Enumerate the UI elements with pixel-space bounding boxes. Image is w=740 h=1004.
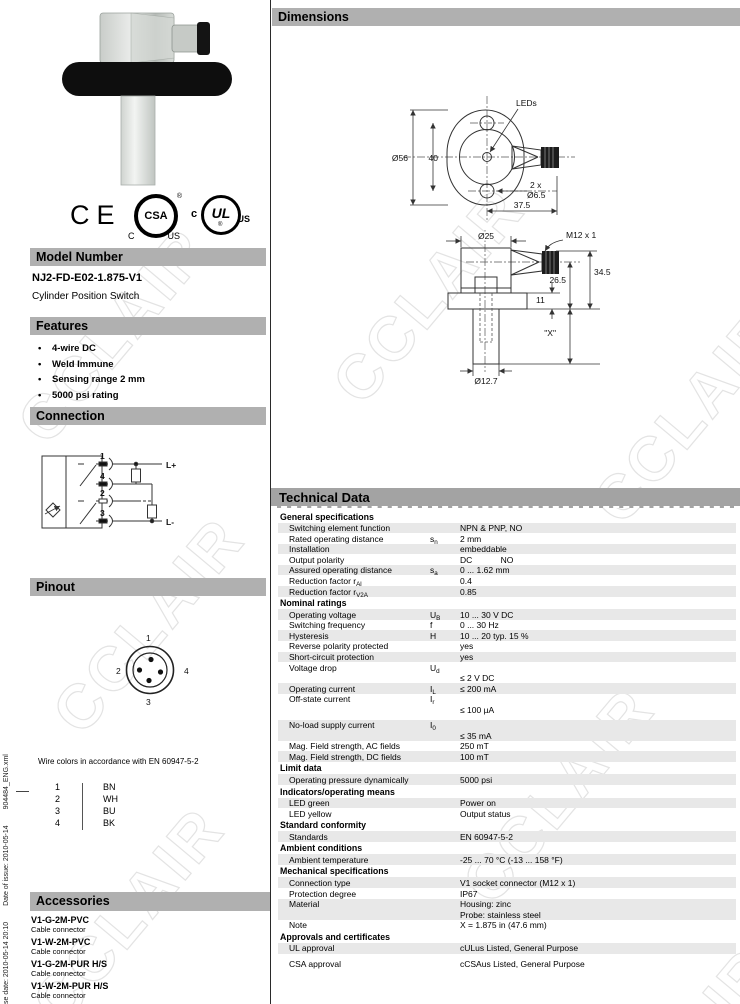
tech-row-value: yes xyxy=(460,652,473,662)
tech-row-symbol: f xyxy=(430,620,432,630)
tech-row-line: Ambient temperature-25 ... 70 °C (-13 ..… xyxy=(278,854,736,865)
accessories-header: Accessories xyxy=(30,892,270,911)
issue-date: Date of issue: 2010-05-14 xyxy=(3,825,10,906)
tech-row-symbol: Ir xyxy=(430,694,434,704)
dim-dia56-label: Ø56 xyxy=(392,153,408,163)
tech-row-value: -25 ... 70 °C (-13 ... 158 °F) xyxy=(460,855,563,865)
tech-row-symbol: H xyxy=(430,631,436,641)
wire-color-row: 1BN xyxy=(45,782,165,794)
tech-row-value: X = 1.875 in (47.6 mm) xyxy=(460,920,547,930)
tech-row: Mag. Field strength, DC fields100 mT xyxy=(278,751,736,762)
tech-row: Switching frequencyf0 ... 30 Hz xyxy=(278,620,736,631)
tech-row-value: ≤ 35 mA xyxy=(460,731,492,741)
wire-color-code: BK xyxy=(103,818,115,828)
tech-row-line: Reverse polarity protectedyes xyxy=(278,641,736,652)
tech-row-label: Hysteresis xyxy=(289,631,329,641)
tech-row-value: ≤ 100 µA xyxy=(460,705,494,715)
tech-row-line: Switching frequencyf0 ... 30 Hz xyxy=(278,620,736,631)
wire-colors-table: 1BN2WH3BU4BK xyxy=(45,782,165,830)
tech-row: Off-state currentIr≤ 100 µA xyxy=(278,694,736,715)
tech-row-value: Probe: stainless steel xyxy=(460,910,541,920)
tech-row-value: 100 mT xyxy=(460,752,489,762)
wire-colors-note: Wire colors in accordance with EN 60947-… xyxy=(38,757,199,766)
tech-row-line: StandardsEN 60947-5-2 xyxy=(278,831,736,842)
tech-row: NoteX = 1.875 in (47.6 mm) xyxy=(278,920,736,931)
dimensions-drawing: Ø56 40 LEDs 2 x Ø6.5 37.5 Ø25 M12 x 1 xyxy=(270,30,740,490)
tech-row: Output polarityDC NO xyxy=(278,554,736,565)
accessory-description: Cable connector xyxy=(31,970,108,979)
features-list: •4-wire DC•Weld Immune•Sensing range 2 m… xyxy=(38,341,145,403)
tech-row-line: Protection degreeIP67 xyxy=(278,888,736,899)
model-number: NJ2-FD-E02-1.875-V1 xyxy=(32,272,142,284)
tech-row: UL approvalcULus Listed, General Purpose xyxy=(278,943,736,954)
tech-row-value: Housing: zinc xyxy=(460,899,511,909)
dim-m12-label: M12 x 1 xyxy=(566,230,597,240)
tech-row-value: IP67 xyxy=(460,889,478,899)
tech-section-header: Indicators/operating means xyxy=(278,787,736,798)
product-photo xyxy=(55,5,240,190)
model-number-header: Model Number xyxy=(30,248,266,266)
tech-row-label: Short-circuit protection xyxy=(289,652,374,662)
feature-label: 5000 psi rating xyxy=(52,390,119,401)
csa-us-label: US xyxy=(167,231,180,241)
dim-34-5-label: 34.5 xyxy=(594,267,611,277)
tech-row-value: Output status xyxy=(460,809,511,819)
l-plus-label: L+ xyxy=(166,460,176,470)
feature-label: Weld Immune xyxy=(52,359,114,370)
tech-row-line: MaterialHousing: zinc xyxy=(278,899,736,910)
pinout-pin-label: 2 xyxy=(116,666,121,676)
tech-section-header: Ambient conditions xyxy=(278,843,736,854)
connection-pin-label: 2 xyxy=(100,488,105,498)
dimensions-header: Dimensions xyxy=(272,8,740,26)
accessory-model: V1-G-2M-PVC xyxy=(31,915,108,926)
pinout-diagram: 1 2 4 3 xyxy=(90,615,210,710)
dim-holes-label-1: 2 x xyxy=(530,180,542,190)
tech-row: MaterialHousing: zincProbe: stainless st… xyxy=(278,899,736,920)
datasheet-page: CCLAIR CCLAIR CCLAIR CCLAIR CCLAIR CCLAI… xyxy=(0,0,740,1004)
tech-row-line: Voltage dropUd xyxy=(278,662,736,673)
tech-row-line: Short-circuit protectionyes xyxy=(278,652,736,663)
release-date: se date: 2010-05-14 20:10 xyxy=(3,922,10,1004)
tech-section-header: Limit data xyxy=(278,763,736,774)
wire-color-code: BU xyxy=(103,806,116,816)
tech-section-header: General specifications xyxy=(278,512,736,523)
tech-row-symbol: UB xyxy=(430,610,440,620)
tech-row-line: UL approvalcULus Listed, General Purpose xyxy=(278,943,736,954)
tech-row-label: Mag. Field strength, DC fields xyxy=(289,752,401,762)
connection-header: Connection xyxy=(30,407,266,425)
tech-row-line: Reduction factor rV2A0.85 xyxy=(278,586,736,597)
wire-color-code: WH xyxy=(103,794,118,804)
accessory-model: V1-W-2M-PVC xyxy=(31,937,108,948)
tech-row-line: Reduction factor rAl0.4 xyxy=(278,575,736,586)
wire-colors-rows: 1BN2WH3BU4BK xyxy=(45,782,165,830)
tech-row-symbol: IL xyxy=(430,684,436,694)
feature-item: •4-wire DC xyxy=(38,341,145,357)
tech-row-value: 0.85 xyxy=(460,587,477,597)
tech-row-line: NoteX = 1.875 in (47.6 mm) xyxy=(278,920,736,931)
file-name: 904484_ENG.xml xyxy=(3,754,10,809)
tech-row: LED yellowOutput status xyxy=(278,808,736,819)
csa-c-label: C xyxy=(128,231,135,241)
csa-logo: CSA ® C US xyxy=(126,191,184,243)
wire-pin-number: 1 xyxy=(55,782,60,792)
tech-row: Installationembeddable xyxy=(278,544,736,555)
tech-row-label: Note xyxy=(289,920,307,930)
tech-row-value: 250 mT xyxy=(460,741,489,751)
document-footer-vertical: se date: 2010-05-14 20:10 Date of issue:… xyxy=(3,740,10,1004)
accessory-description: Cable connector xyxy=(31,926,108,935)
tech-row-label: LED yellow xyxy=(289,809,332,819)
tech-row-label: Assured operating distance xyxy=(289,565,392,575)
dim-x-label: "X" xyxy=(544,328,556,338)
connection-pin-label: 3 xyxy=(100,508,105,518)
connection-pin-label: 1 xyxy=(100,451,105,461)
tech-row-line: Operating pressure dynamically5000 psi xyxy=(278,774,736,785)
tech-row-label: Protection degree xyxy=(289,889,356,899)
tech-row-value: 10 ... 30 V DC xyxy=(460,610,513,620)
tech-row-label: Connection type xyxy=(289,878,350,888)
tech-row-value: yes xyxy=(460,641,473,651)
tech-row-line: ≤ 2 V DC xyxy=(278,673,736,684)
tech-row-label: Material xyxy=(289,899,319,909)
tech-row: Operating currentIL≤ 200 mA xyxy=(278,683,736,694)
features-header: Features xyxy=(30,317,266,335)
tech-row-label: Reverse polarity protected xyxy=(289,641,388,651)
tech-section-header: Nominal ratings xyxy=(278,598,736,609)
tech-row-symbol: sa xyxy=(430,565,438,575)
tech-row: Operating pressure dynamically5000 psi xyxy=(278,774,736,785)
tech-row-value: ≤ 200 mA xyxy=(460,684,496,694)
model-subtitle: Cylinder Position Switch xyxy=(32,291,139,302)
tech-row: HysteresisH10 ... 20 typ. 15 % xyxy=(278,630,736,641)
connection-diagram: 1 4 2 3 L+ L- xyxy=(30,435,240,550)
technical-data-header: Technical Data xyxy=(271,488,740,508)
tech-row-label: Operating voltage xyxy=(289,610,356,620)
tech-row-line: Mag. Field strength, AC fields250 mT xyxy=(278,741,736,752)
tech-row-label: CSA approval xyxy=(289,959,341,969)
tech-row: Reduction factor rV2A0.85 xyxy=(278,586,736,597)
ul-logo: UL ® c US xyxy=(190,194,250,244)
tech-row: CSA approvalcCSAus Listed, General Purpo… xyxy=(278,958,736,969)
tech-row-value: 0 ... 30 Hz xyxy=(460,620,499,630)
tech-row-value: EN 60947-5-2 xyxy=(460,832,513,842)
bullet-icon: • xyxy=(38,372,52,388)
feature-label: Sensing range 2 mm xyxy=(52,374,145,385)
dim-dia25-label: Ø25 xyxy=(478,231,494,241)
connection-pin-label: 4 xyxy=(100,471,105,481)
tech-row-line: Rated operating distancesn2 mm xyxy=(278,533,736,544)
tech-row: Protection degreeIP67 xyxy=(278,888,736,899)
ul-us-label: US xyxy=(237,214,250,224)
tech-row-label: LED green xyxy=(289,798,330,808)
tech-row: Connection typeV1 socket connector (M12 … xyxy=(278,877,736,888)
tech-row-line: Installationembeddable xyxy=(278,544,736,555)
tech-row-label: Voltage drop xyxy=(289,663,337,673)
tech-row-line: Assured operating distancesa0 ... 1.62 m… xyxy=(278,565,736,576)
dim-37-5-label: 37.5 xyxy=(514,200,531,210)
registered-icon: ® xyxy=(177,193,182,200)
bullet-icon: • xyxy=(38,341,52,357)
tech-row-label: Ambient temperature xyxy=(289,855,368,865)
fold-mark xyxy=(16,791,29,792)
l-minus-label: L- xyxy=(166,517,174,527)
dim-11-label: 11 xyxy=(536,295,545,305)
tech-section-header: Mechanical specifications xyxy=(278,866,736,877)
tech-row: Mag. Field strength, AC fields250 mT xyxy=(278,741,736,752)
pinout-pin-label: 4 xyxy=(184,666,189,676)
tech-row-line: ≤ 35 mA xyxy=(278,730,736,741)
tech-row-line: Operating currentIL≤ 200 mA xyxy=(278,683,736,694)
tech-row-value: DC NO xyxy=(460,555,513,565)
ul-circle-icon: UL xyxy=(201,195,241,235)
tech-row-label: Output polarity xyxy=(289,555,344,565)
tech-row: Reverse polarity protectedyes xyxy=(278,641,736,652)
tech-row-line: Probe: stainless steel xyxy=(278,909,736,920)
feature-item: •Sensing range 2 mm xyxy=(38,372,145,388)
wire-color-row: 2WH xyxy=(45,794,165,806)
tech-row-label: Switching element function xyxy=(289,523,390,533)
tech-label-subscript: V2A xyxy=(356,592,368,599)
accessories-list: V1-G-2M-PVCCable connectorV1-W-2M-PVCCab… xyxy=(31,915,108,1003)
tech-row-value: 0 ... 1.62 mm xyxy=(460,565,510,575)
feature-label: 4-wire DC xyxy=(52,343,96,354)
tech-row-label: Switching frequency xyxy=(289,620,365,630)
tech-row-value: 2 mm xyxy=(460,534,481,544)
accessory-description: Cable connector xyxy=(31,992,108,1001)
tech-row: Rated operating distancesn2 mm xyxy=(278,533,736,544)
technical-table: General specificationsSwitching element … xyxy=(278,510,736,969)
tech-row-line: Off-state currentIr xyxy=(278,694,736,705)
tech-row-line: ≤ 100 µA xyxy=(278,705,736,716)
wire-color-row: 4BK xyxy=(45,818,165,830)
tech-row-value: cULus Listed, General Purpose xyxy=(460,943,578,953)
tech-row-label: No-load supply current xyxy=(289,720,375,730)
tech-row-value: Power on xyxy=(460,798,496,808)
tech-row-value: V1 socket connector (M12 x 1) xyxy=(460,878,575,888)
ul-c-label: c xyxy=(191,208,197,220)
tech-row-value: ≤ 2 V DC xyxy=(460,673,494,683)
accessory-model: V1-G-2M-PUR H/S xyxy=(31,959,108,970)
tech-row-value: NPN & PNP, NO xyxy=(460,523,522,533)
tech-row-label: Reduction factor rAl xyxy=(289,576,362,586)
tech-row-symbol: Ud xyxy=(430,663,440,673)
wire-pin-number: 2 xyxy=(55,794,60,804)
tech-row: Reduction factor rAl0.4 xyxy=(278,575,736,586)
bullet-icon: • xyxy=(38,388,52,404)
pinout-pin-label: 3 xyxy=(146,697,151,707)
tech-row-label: Standards xyxy=(289,832,328,842)
tech-row: Switching element functionNPN & PNP, NO xyxy=(278,523,736,534)
wire-color-row: 3BU xyxy=(45,806,165,818)
tech-row-label: Mag. Field strength, AC fields xyxy=(289,741,400,751)
pinout-pin-label: 1 xyxy=(146,633,151,643)
tech-section-header: Standard conformity xyxy=(278,820,736,831)
tech-row-label: Operating current xyxy=(289,684,355,694)
wire-pin-number: 3 xyxy=(55,806,60,816)
tech-row-label: Off-state current xyxy=(289,694,350,704)
tech-row-line: LED greenPower on xyxy=(278,798,736,809)
tech-row-line: Mag. Field strength, DC fields100 mT xyxy=(278,751,736,762)
dim-40-label: 40 xyxy=(429,153,439,163)
tech-row-label: Reduction factor rV2A xyxy=(289,587,368,597)
tech-row-label: UL approval xyxy=(289,943,335,953)
tech-row-line: Output polarityDC NO xyxy=(278,554,736,565)
tech-row: Ambient temperature-25 ... 70 °C (-13 ..… xyxy=(278,854,736,865)
feature-item: •5000 psi rating xyxy=(38,388,145,404)
accessory-model: V1-W-2M-PUR H/S xyxy=(31,981,108,992)
dim-dia12-7-label: Ø12.7 xyxy=(474,376,497,386)
tech-row-line: LED yellowOutput status xyxy=(278,808,736,819)
dim-holes-label-2: Ø6.5 xyxy=(527,190,546,200)
tech-row: No-load supply currentI0≤ 35 mA xyxy=(278,720,736,741)
wire-pin-number: 4 xyxy=(55,818,60,828)
leds-label: LEDs xyxy=(516,98,537,108)
tech-section-header: Approvals and certificates xyxy=(278,932,736,943)
registered-icon: ® xyxy=(218,222,222,228)
tech-row-symbol: I0 xyxy=(430,720,436,730)
tech-row-line: No-load supply currentI0 xyxy=(278,720,736,731)
tech-row-value: 5000 psi xyxy=(460,775,492,785)
feature-item: •Weld Immune xyxy=(38,357,145,373)
tech-row-line: Operating voltageUB10 ... 30 V DC xyxy=(278,609,736,620)
tech-row: Operating voltageUB10 ... 30 V DC xyxy=(278,609,736,620)
tech-row: StandardsEN 60947-5-2 xyxy=(278,831,736,842)
accessory-description: Cable connector xyxy=(31,948,108,957)
bullet-icon: • xyxy=(38,357,52,373)
tech-row: LED greenPower on xyxy=(278,798,736,809)
tech-row-label: Installation xyxy=(289,544,330,554)
ce-mark: CE xyxy=(70,200,122,231)
tech-row-value: 0.4 xyxy=(460,576,472,586)
pinout-header: Pinout xyxy=(30,578,266,596)
tech-row-line: Connection typeV1 socket connector (M12 … xyxy=(278,877,736,888)
tech-row-label: Rated operating distance xyxy=(289,534,384,544)
tech-row-line: HysteresisH10 ... 20 typ. 15 % xyxy=(278,630,736,641)
tech-row-line: Switching element functionNPN & PNP, NO xyxy=(278,523,736,534)
wire-color-code: BN xyxy=(103,782,116,792)
tech-row-symbol: sn xyxy=(430,534,438,544)
tech-row-label: Operating pressure dynamically xyxy=(289,775,409,785)
tech-row-value: embeddable xyxy=(460,544,507,554)
tech-row: Voltage dropUd≤ 2 V DC xyxy=(278,662,736,683)
tech-row: Short-circuit protectionyes xyxy=(278,652,736,663)
tech-row-line: CSA approvalcCSAus Listed, General Purpo… xyxy=(278,958,736,969)
tech-row-value: cCSAus Listed, General Purpose xyxy=(460,959,585,969)
tech-row: Assured operating distancesa0 ... 1.62 m… xyxy=(278,565,736,576)
tech-row-value: 10 ... 20 typ. 15 % xyxy=(460,631,529,641)
